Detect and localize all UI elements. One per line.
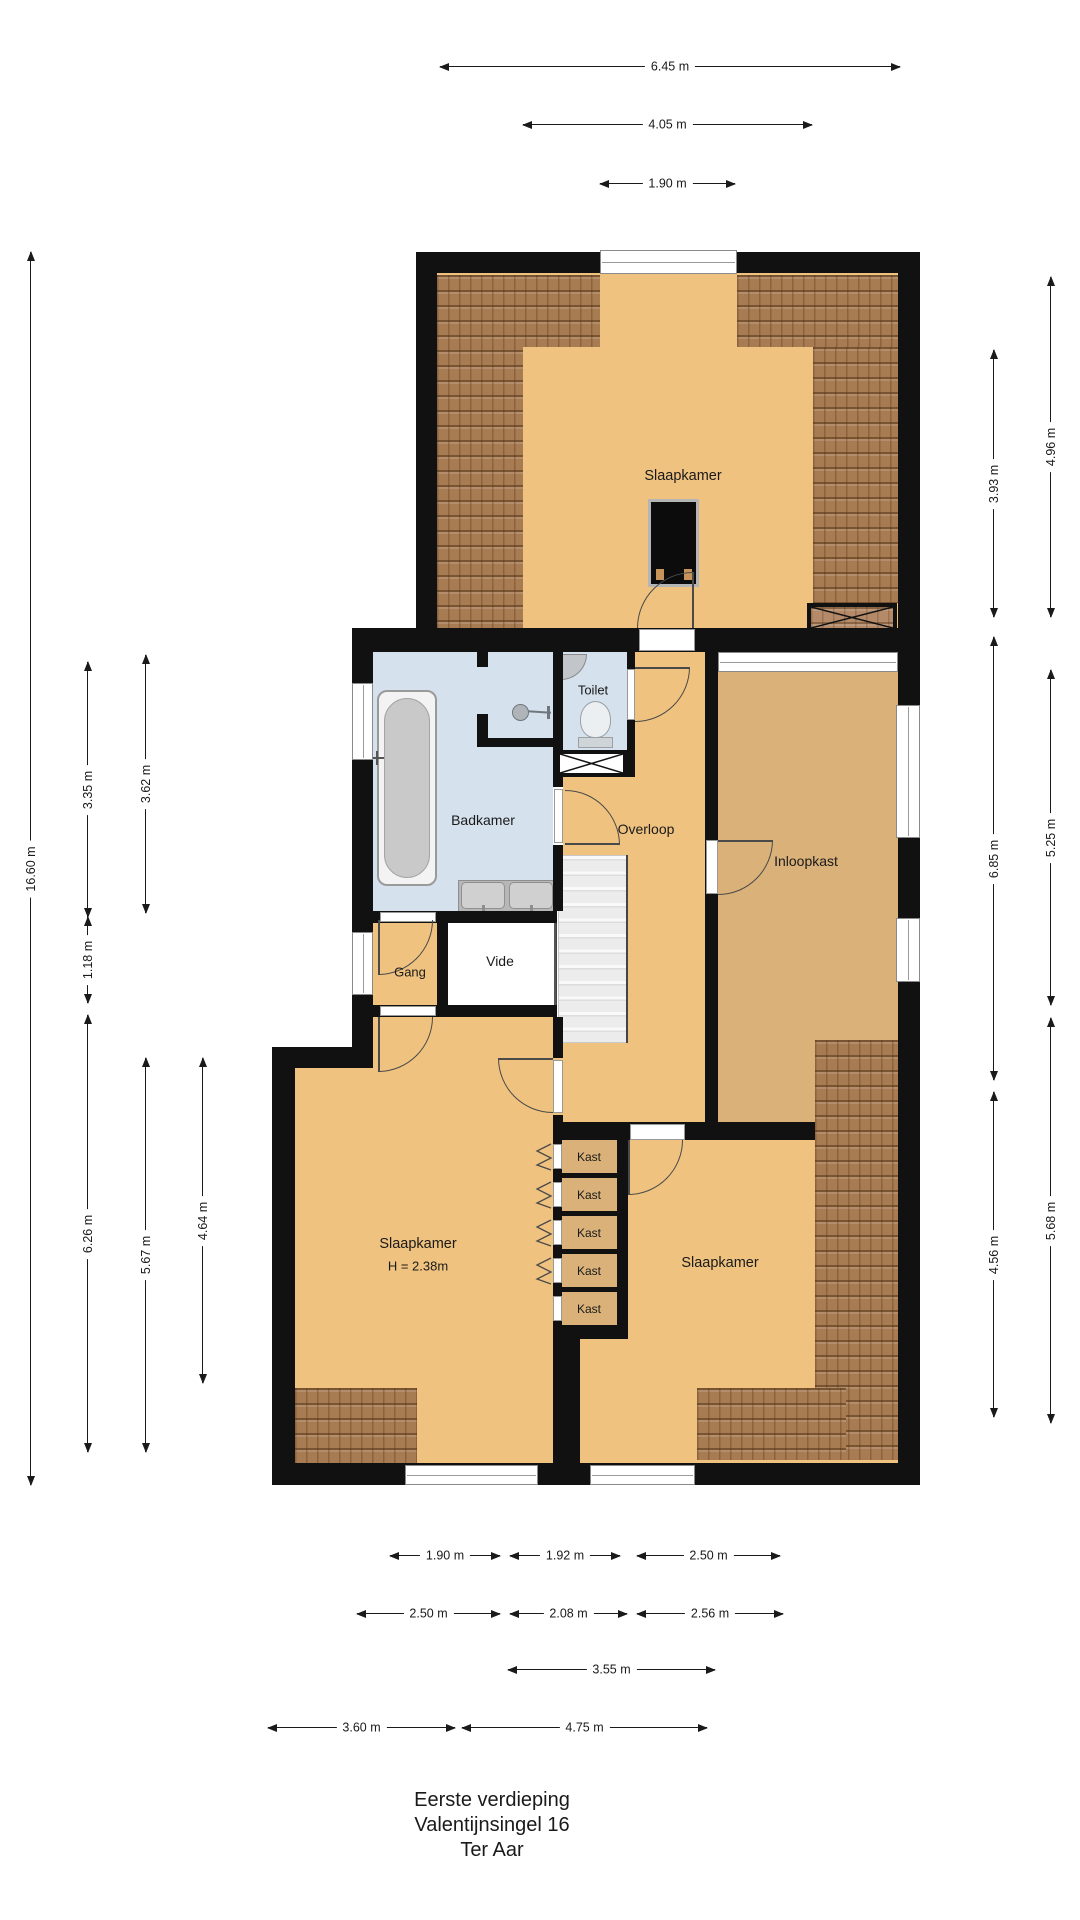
dim-top-2: 4.05 m [523,124,812,125]
label-walk-in-closet: Inloopkast [774,853,838,869]
plan-title-block: Eerste verdieping Valentijnsingel 16 Ter… [232,1788,752,1863]
door-leaf-hallway-north [378,920,380,975]
dim-left-335: 3.35 m [87,662,88,917]
dim-bottom-r1-2: 1.92 m [510,1555,620,1556]
window-bottom-left [405,1465,538,1485]
door-leaf-bedroom-top [692,572,694,628]
label-bathroom: Badkamer [451,812,515,828]
dim-bottom-r2-1: 2.50 m [357,1613,500,1614]
door-frame-bedroom-top [639,629,695,651]
label-closet-4: Kast [577,1264,601,1278]
window-right-lower [896,918,920,982]
bifold-door-icon-3 [533,1219,553,1247]
door-frame-toilet [627,669,635,720]
door-leaf-bathroom [565,843,620,845]
staircase-right-edge [626,855,628,1043]
label-bedroom-left-height: H = 2.38m [388,1259,448,1274]
label-bedroom-left: Slaapkamer [379,1236,456,1252]
dim-right-456: 4.56 m [993,1092,994,1417]
door-frame-bathroom [554,789,563,843]
floor-bedroom-right-2 [580,1339,628,1463]
chimney-flue-left [656,569,664,580]
label-closet-3: Kast [577,1226,601,1240]
label-closet-5: Kast [577,1302,601,1316]
dim-right-393: 3.93 m [993,350,994,617]
shower-head-icon [512,704,529,721]
window-left-bathroom [352,683,373,760]
label-bedroom-right: Slaapkamer [681,1255,758,1271]
door-frame-walk-in-closet [706,840,718,894]
dim-left-total: 16.60 m [30,252,31,1485]
dim-left-626: 6.26 m [87,1015,88,1452]
dim-bottom-r4-2: 4.75 m [462,1727,707,1728]
label-closet-1: Kast [577,1150,601,1164]
window-bottom-right [590,1465,695,1485]
roof-slope-bottom-left-block [295,1388,417,1463]
door-leaf-bedroom-left [498,1058,553,1060]
bifold-door-icon-1 [533,1143,553,1171]
floor-landing-4 [556,1043,628,1122]
roof-window-box [807,603,897,632]
roof-slope-right-column [813,347,899,603]
dim-left-118: 1.18 m [87,917,88,1003]
wall-left-bottom [272,1047,295,1485]
door-frame-hallway-south [380,1006,436,1016]
toilet-bowl [580,701,611,738]
plan-title-city: Ter Aar [232,1838,752,1863]
roof-slope-left-column [437,275,523,630]
door-frame-closet-5 [553,1296,562,1321]
shaft-box [556,750,627,777]
dim-bottom-r1-3: 2.50 m [637,1555,780,1556]
plan-title-floor: Eerste verdieping [232,1788,752,1813]
wall-shower-south [477,738,553,747]
roof-slope-top-right-band [737,275,899,347]
bifold-door-icon-4 [533,1257,553,1285]
bathtub-basin [384,698,430,878]
roof-slope-bottom-right-block [697,1388,846,1460]
door-frame-bedroom-right [630,1124,685,1140]
window-right-upper [896,705,920,838]
label-toilet: Toilet [578,683,608,698]
door-leaf-walk-in-closet [718,840,773,842]
dim-bottom-r4-1: 3.60 m [268,1727,455,1728]
floor-plan: Slaapkamer Toilet Badkamer Overloop Inlo… [0,0,1080,1920]
wall-shower-stub-1 [477,652,488,667]
dim-bottom-r2-3: 2.56 m [637,1613,783,1614]
dim-top-3: 1.90 m [600,183,735,184]
dim-right-525: 5.25 m [1050,670,1051,1005]
wall-right-outer [898,252,920,1463]
plan-title-address: Valentijnsingel 16 [232,1813,752,1838]
door-leaf-hallway-south [378,1017,380,1072]
wall-closet-row-south [553,1325,628,1339]
door-frame-closet-2 [553,1182,562,1207]
dim-right-685: 6.85 m [993,637,994,1080]
shower-valve-icon [547,706,550,719]
dim-left-567: 5.67 m [145,1058,146,1452]
dim-bottom-r1-1: 1.90 m [390,1555,500,1556]
door-frame-bedroom-left [553,1060,563,1113]
wall-bath-east-lower [553,845,563,911]
window-top [600,250,737,274]
door-frame-closet-3 [553,1220,562,1245]
staircase [558,855,627,1043]
door-frame-closet-1 [553,1144,562,1169]
wall-hall-void-divider [437,911,448,1007]
label-hallway: Gang [394,965,426,980]
dim-left-464: 4.64 m [202,1058,203,1383]
dim-top-1: 6.45 m [440,66,900,67]
label-landing: Overloop [618,821,675,837]
wall-bedroom-divider [553,1339,580,1463]
window-left-hallway [352,932,373,995]
wall-corridor-west-upper [553,1017,563,1058]
door-leaf-bedroom-right [628,1140,630,1195]
void-right-edge [554,923,556,1007]
door-leaf-toilet [635,667,690,669]
roof-window-strip [718,652,898,672]
dim-left-362: 3.62 m [145,655,146,913]
label-closet-2: Kast [577,1188,601,1202]
label-bedroom-top: Slaapkamer [644,468,721,484]
door-frame-closet-4 [553,1258,562,1283]
dim-right-496: 4.96 m [1050,277,1051,617]
dim-right-568: 5.68 m [1050,1018,1051,1423]
label-void: Vide [486,953,514,969]
bathtub-faucet-icon-2 [376,751,378,765]
dim-bottom-r2-2: 2.08 m [510,1613,627,1614]
floor-landing [635,652,705,1122]
dim-bottom-r3-1: 3.55 m [508,1669,715,1670]
bifold-door-icon-2 [533,1181,553,1209]
wall-top-left [416,252,437,650]
toilet-tank [578,737,613,748]
